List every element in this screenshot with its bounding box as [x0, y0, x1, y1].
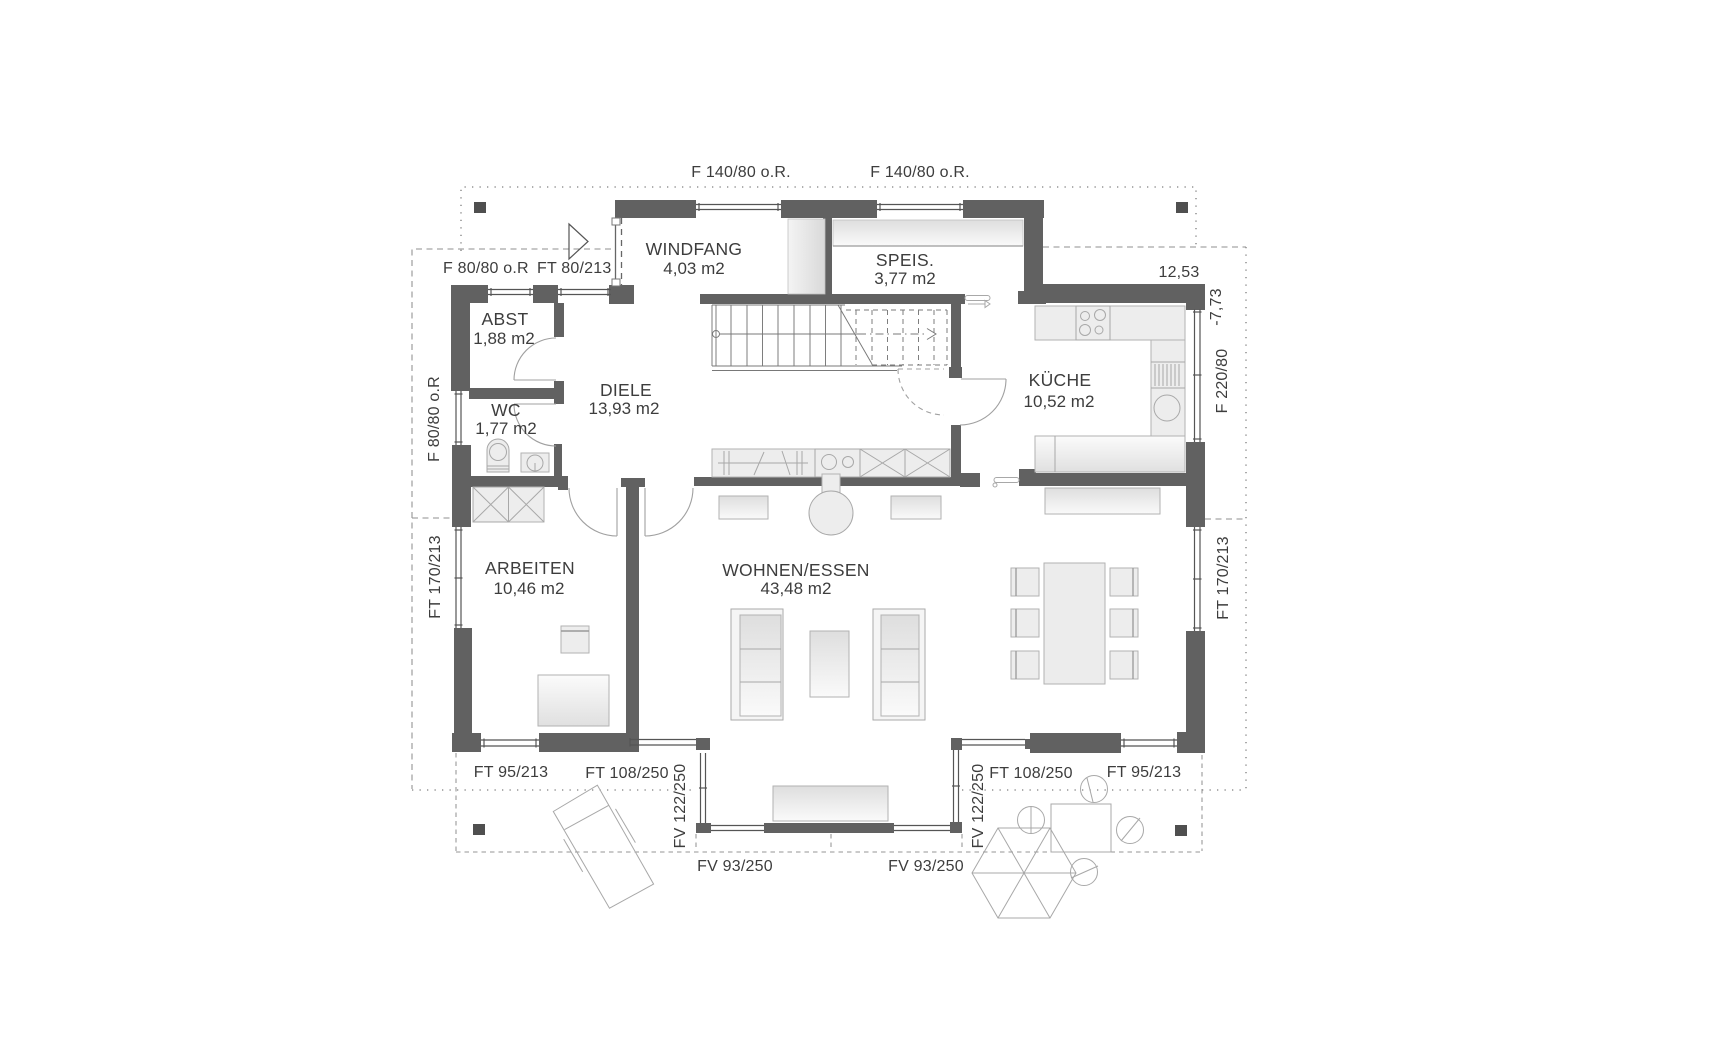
svg-text:SPEIS.: SPEIS.: [876, 250, 934, 270]
svg-text:1,77 m2: 1,77 m2: [475, 419, 536, 438]
svg-text:10,46 m2: 10,46 m2: [494, 579, 565, 598]
svg-text:FV 93/250: FV 93/250: [888, 858, 964, 875]
svg-text:DIELE: DIELE: [600, 380, 652, 400]
svg-text:F 80/80 o.R: F 80/80 o.R: [443, 260, 529, 277]
svg-text:F 140/80 o.R.: F 140/80 o.R.: [870, 164, 970, 181]
svg-text:FT 170/213: FT 170/213: [1215, 536, 1232, 620]
svg-text:WINDFANG: WINDFANG: [646, 239, 743, 259]
svg-text:F 140/80 o.R.: F 140/80 o.R.: [691, 164, 791, 181]
svg-text:4,03 m2: 4,03 m2: [663, 259, 724, 278]
svg-text:ABST: ABST: [482, 309, 529, 329]
svg-text:FT 108/250: FT 108/250: [989, 765, 1073, 782]
svg-text:3,77 m2: 3,77 m2: [874, 269, 935, 288]
svg-text:FT 170/213: FT 170/213: [427, 535, 444, 619]
svg-text:FT 108/250: FT 108/250: [585, 765, 669, 782]
svg-text:1,88 m2: 1,88 m2: [473, 329, 534, 348]
svg-text:FV 93/250: FV 93/250: [697, 858, 773, 875]
svg-text:FT 95/213: FT 95/213: [1107, 764, 1181, 781]
svg-text:F 220/80: F 220/80: [1214, 349, 1231, 414]
svg-text:12,53: 12,53: [1158, 264, 1199, 281]
svg-text:WC: WC: [491, 400, 521, 420]
svg-text:FV 122/250: FV 122/250: [970, 764, 987, 849]
svg-text:FT 80/213: FT 80/213: [537, 260, 611, 277]
svg-text:ARBEITEN: ARBEITEN: [485, 558, 575, 578]
svg-text:43,48 m2: 43,48 m2: [761, 579, 832, 598]
svg-text:FT 95/213: FT 95/213: [474, 764, 548, 781]
svg-text:KÜCHE: KÜCHE: [1029, 370, 1092, 390]
svg-text:10,52 m2: 10,52 m2: [1024, 392, 1095, 411]
svg-text:-7,73: -7,73: [1208, 288, 1225, 325]
svg-text:FV 122/250: FV 122/250: [672, 764, 689, 849]
svg-text:F 80/80 o.R: F 80/80 o.R: [426, 376, 443, 462]
svg-text:13,93 m2: 13,93 m2: [589, 399, 660, 418]
svg-text:WOHNEN/ESSEN: WOHNEN/ESSEN: [722, 560, 870, 580]
